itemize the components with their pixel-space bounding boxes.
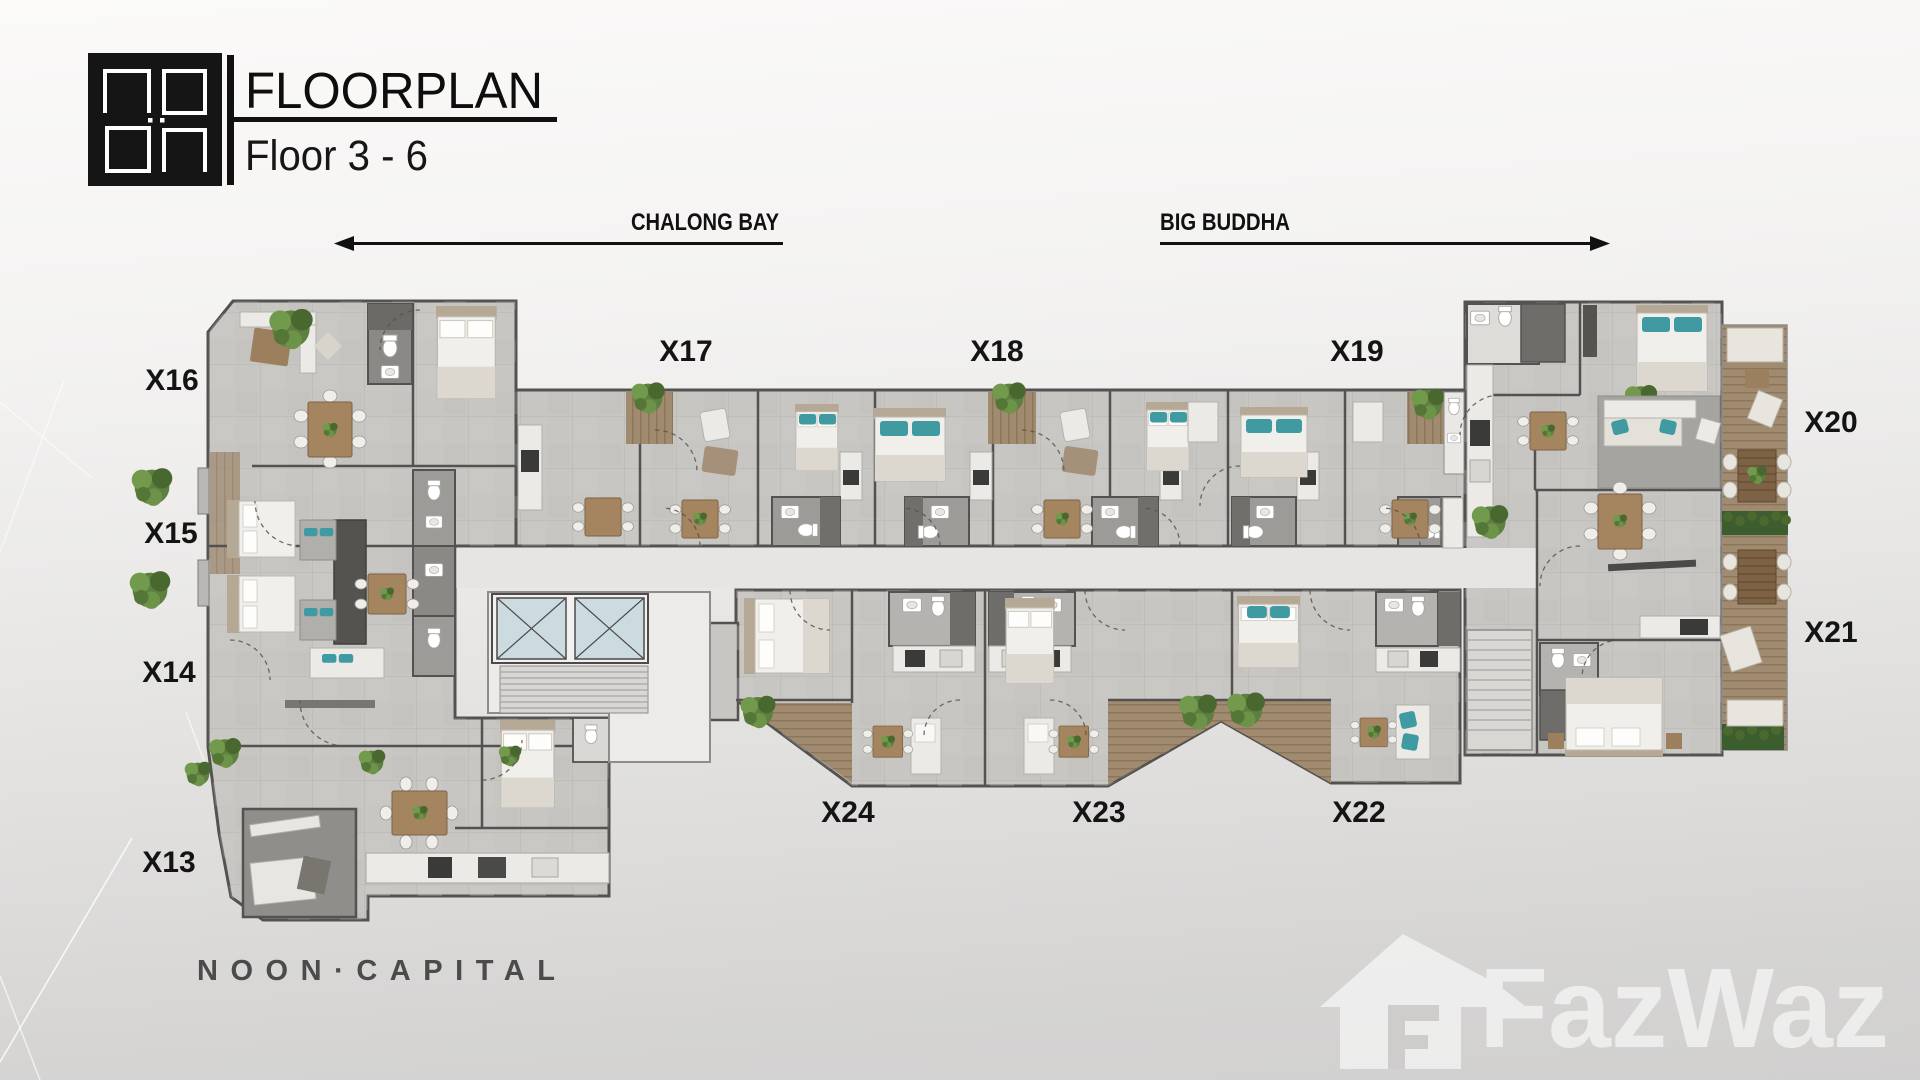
svg-text:FLOORPLAN: FLOORPLAN [245,62,543,119]
svg-text:NOON·CAPITAL: NOON·CAPITAL [197,955,568,987]
svg-text:Floor 3 - 6: Floor 3 - 6 [245,132,428,180]
svg-text:X24: X24 [821,796,875,829]
svg-text:CHALONG BAY: CHALONG BAY [631,209,779,236]
svg-text:X13: X13 [142,846,195,879]
svg-text:X21: X21 [1804,616,1857,649]
svg-text:X19: X19 [1330,335,1383,368]
svg-text:X15: X15 [144,517,197,550]
svg-text:X22: X22 [1332,796,1385,829]
svg-text:X17: X17 [659,335,712,368]
svg-text:X16: X16 [145,364,198,397]
svg-text:X20: X20 [1804,406,1857,439]
svg-text:BIG BUDDHA: BIG BUDDHA [1160,209,1290,236]
svg-text:FazWaz: FazWaz [1479,945,1889,1071]
svg-text:X18: X18 [970,335,1023,368]
svg-text:X23: X23 [1072,796,1125,829]
svg-text:X14: X14 [142,656,196,689]
